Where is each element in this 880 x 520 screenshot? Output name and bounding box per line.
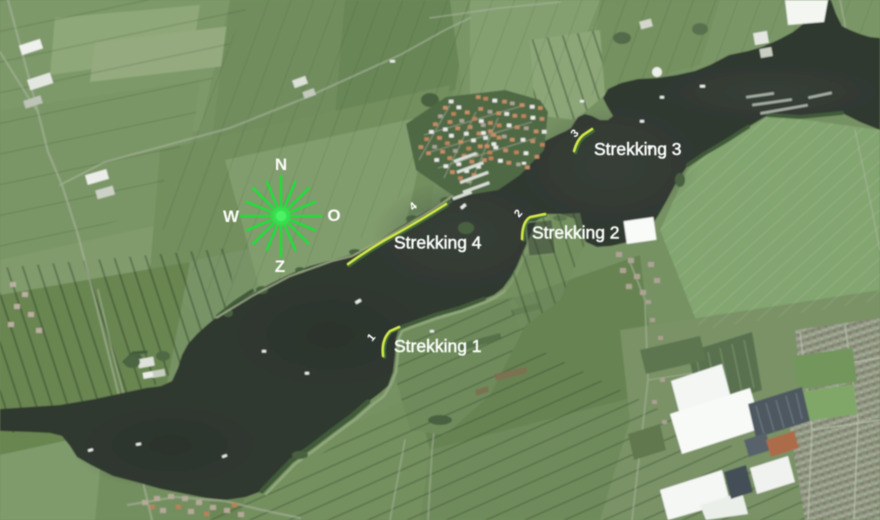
svg-text:Z: Z xyxy=(275,257,285,276)
svg-text:Strekking 2: Strekking 2 xyxy=(532,223,620,243)
svg-text:Strekking 3: Strekking 3 xyxy=(594,139,682,159)
svg-text:N: N xyxy=(275,155,287,174)
svg-text:O: O xyxy=(327,206,340,225)
svg-text:Strekking 4: Strekking 4 xyxy=(394,233,482,253)
svg-text:Strekking 1: Strekking 1 xyxy=(394,336,482,356)
svg-text:W: W xyxy=(223,207,240,226)
